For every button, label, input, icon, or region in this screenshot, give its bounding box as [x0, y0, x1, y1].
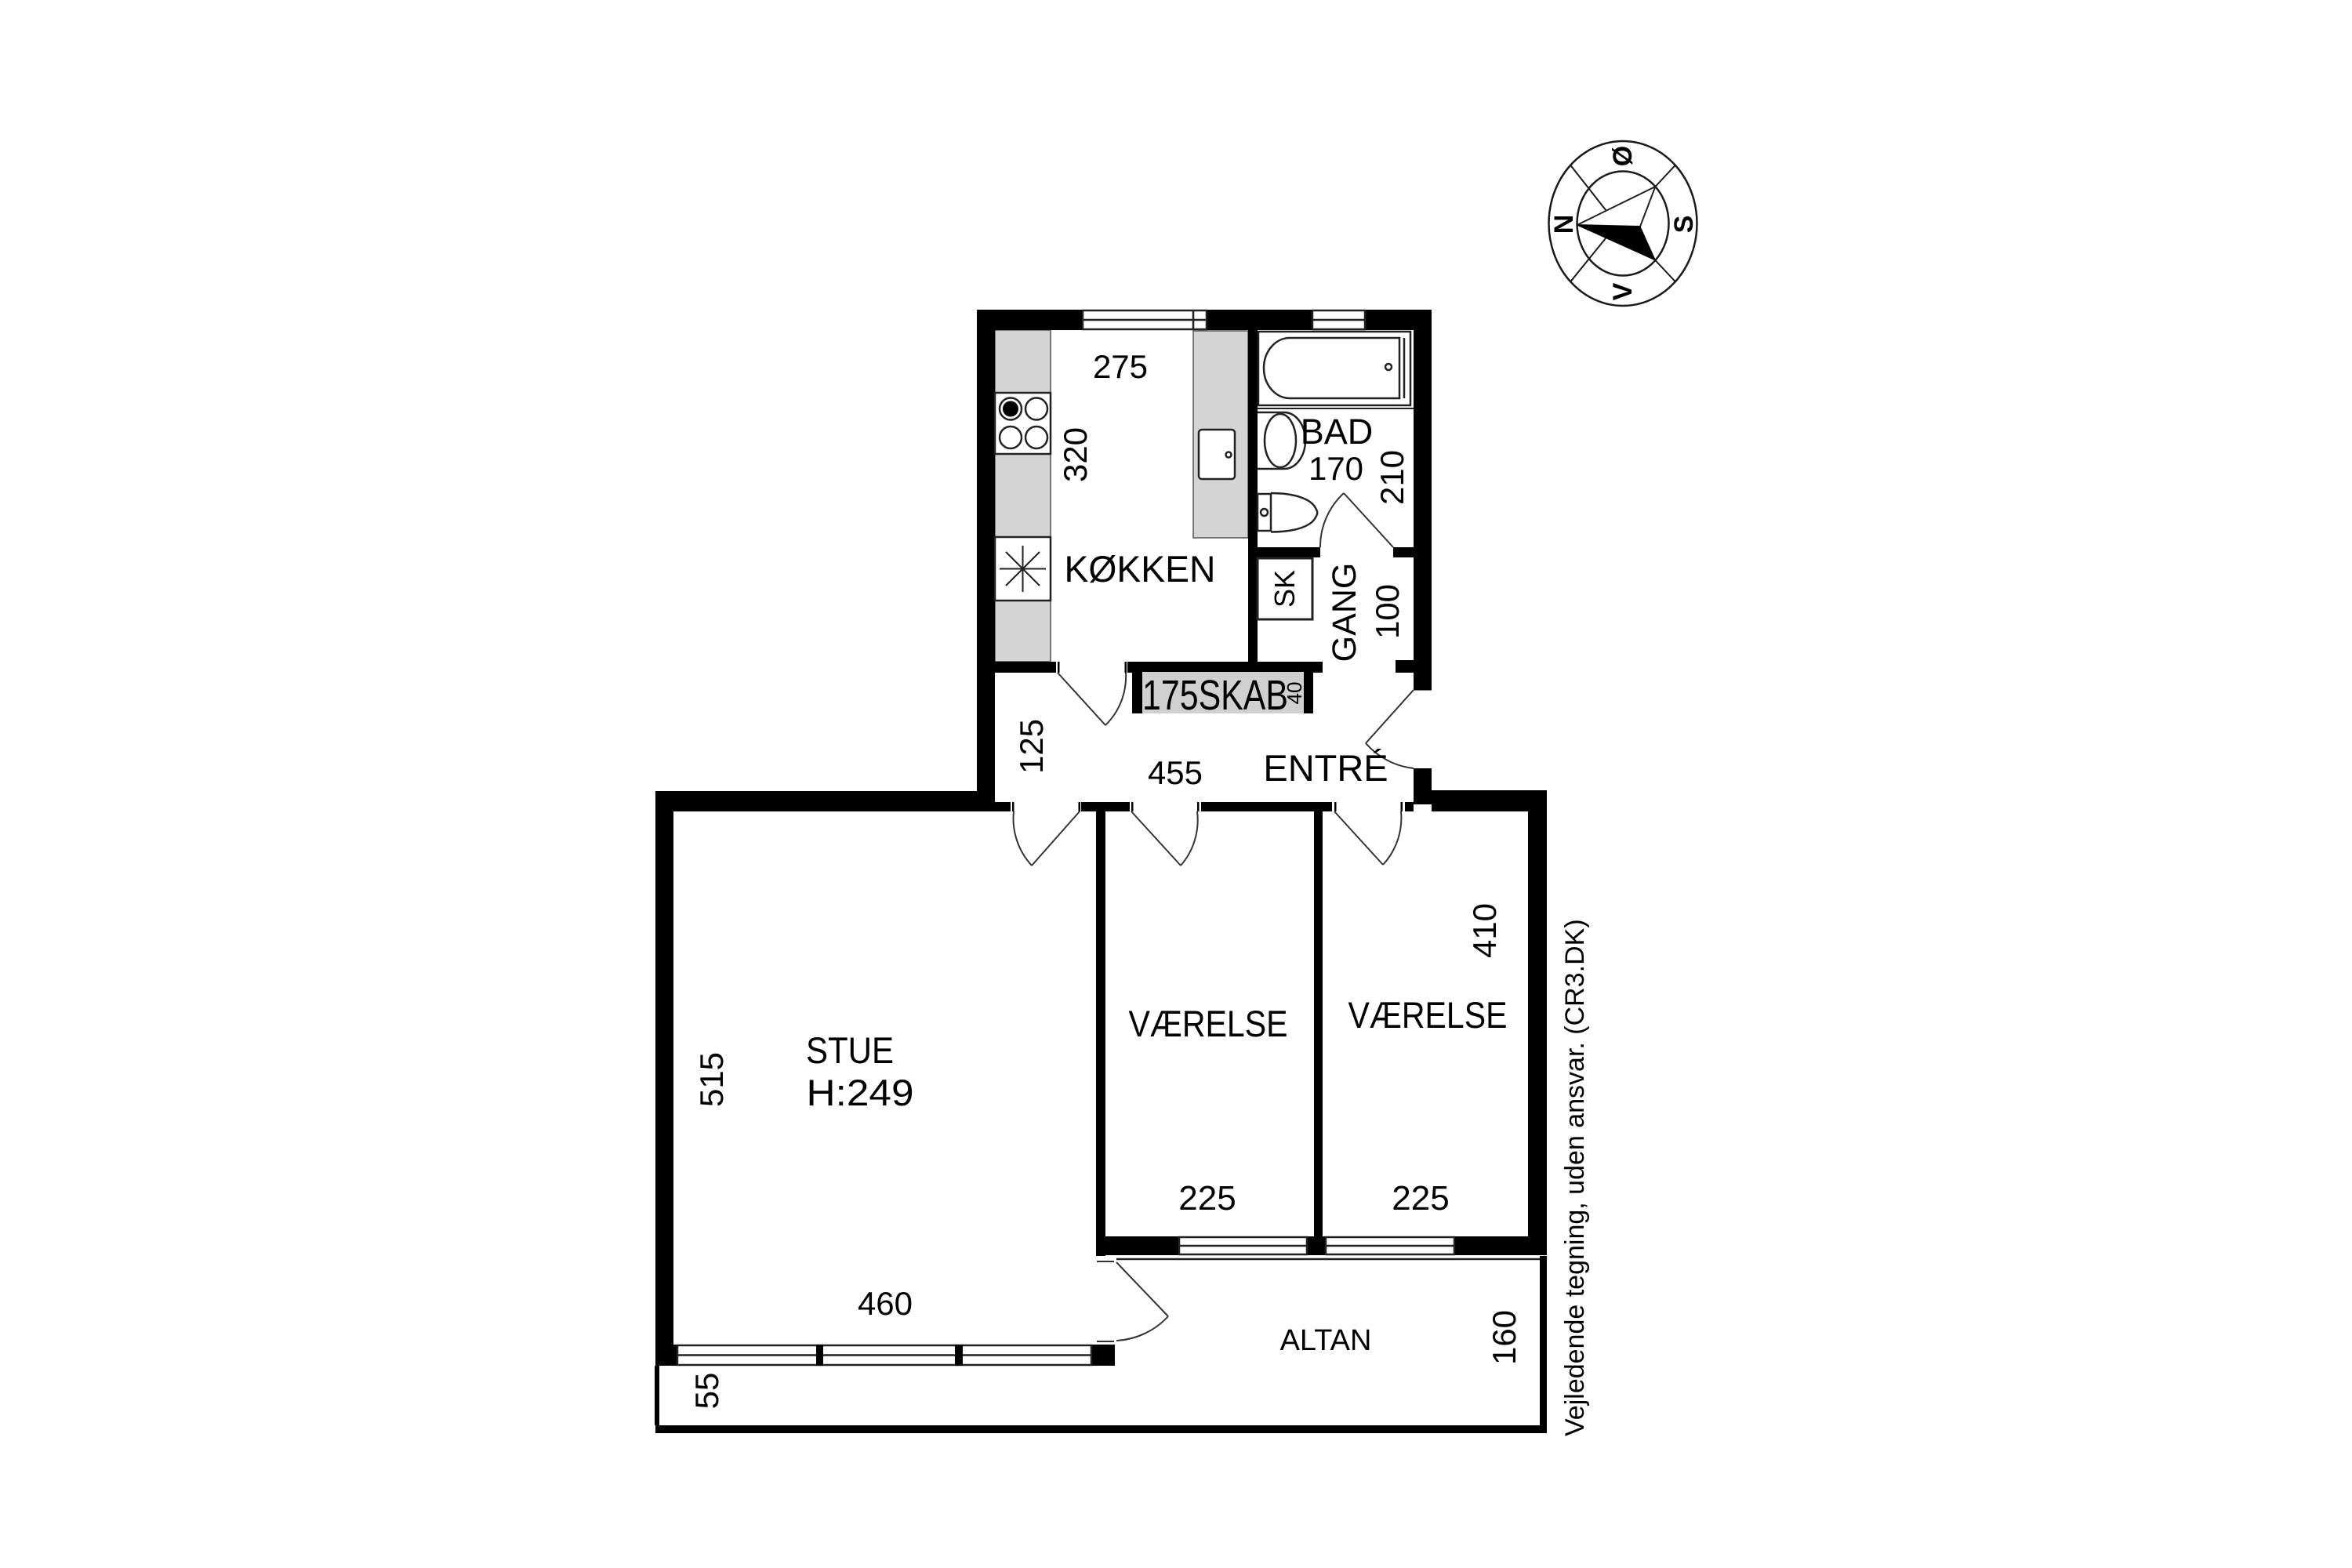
svg-text:460: 460 [858, 1285, 913, 1322]
svg-text:VÆRELSE: VÆRELSE [1129, 1003, 1288, 1044]
svg-text:160: 160 [1486, 1310, 1523, 1365]
svg-text:175SKAB: 175SKAB [1142, 672, 1288, 719]
svg-text:N: N [1549, 215, 1579, 234]
svg-text:BAD: BAD [1301, 412, 1374, 452]
svg-text:S: S [1669, 216, 1699, 234]
svg-text:Vejledende tegning, uden ansva: Vejledende tegning, uden ansvar. (CR3.DK… [1560, 919, 1590, 1436]
svg-text:210: 210 [1374, 450, 1410, 505]
svg-text:55: 55 [688, 1373, 725, 1410]
svg-text:ALTAN: ALTAN [1280, 1324, 1372, 1357]
svg-text:320: 320 [1057, 427, 1094, 482]
svg-text:GANG: GANG [1326, 563, 1363, 662]
svg-text:KØKKEN: KØKKEN [1065, 548, 1216, 590]
svg-text:Ø: Ø [1608, 146, 1638, 166]
svg-text:ENTRÉ: ENTRÉ [1263, 747, 1388, 789]
svg-text:STUE: STUE [806, 1029, 894, 1071]
svg-text:V: V [1608, 282, 1638, 300]
svg-text:SK: SK [1269, 570, 1301, 608]
svg-text:225: 225 [1178, 1179, 1236, 1218]
svg-text:100: 100 [1369, 584, 1406, 639]
svg-text:275: 275 [1093, 348, 1148, 385]
svg-text:410: 410 [1466, 903, 1503, 958]
svg-text:40: 40 [1283, 682, 1306, 705]
svg-text:225: 225 [1392, 1179, 1449, 1218]
svg-text:125: 125 [1013, 719, 1050, 774]
svg-text:170: 170 [1308, 450, 1363, 487]
svg-text:H:249: H:249 [807, 1072, 914, 1113]
svg-text:455: 455 [1148, 754, 1203, 791]
svg-text:VÆRELSE: VÆRELSE [1348, 994, 1508, 1036]
svg-text:515: 515 [693, 1052, 730, 1107]
